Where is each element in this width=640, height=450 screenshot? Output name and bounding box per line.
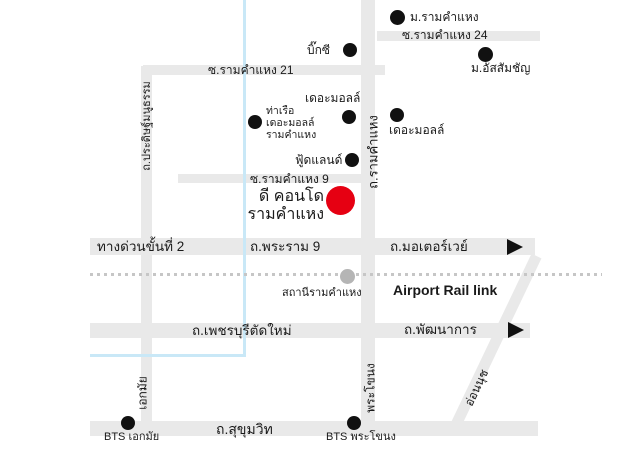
pier-label-line1: ท่าเรือ [266,105,316,117]
bts-phra-khanong-label: BTS พระโขนง [326,431,396,443]
d-condo-label-line1: ดี คอนโด [228,188,324,206]
the-mall-pier-label: ท่าเรือ เดอะมอลล์ รามคำแหง [266,105,316,141]
assumption-university-label: ม.อัสสัมชัญ [471,62,530,75]
d-condo-label: ดี คอนโด รามคำแหง [228,188,324,224]
ramkhamhaeng-station-dot [340,269,355,284]
bts-ekkamai-label: BTS เอกมัย [104,431,159,443]
ramkhamhaeng-station-label: สถานีรามคำแหง [282,286,362,301]
ekkamai-road-label: เอกมัย [134,376,153,410]
the-mall-east-dot [390,108,404,122]
d-condo-marker [326,186,355,215]
pier-label-line2: เดอะมอลล์ [266,117,316,129]
phatthanakan-road-label: ถ.พัฒนาการ [404,322,477,338]
big-c-label: บิ๊กซี [307,44,330,57]
bts-phra-khanong-dot [347,416,361,430]
the-mall-west-label: เดอะมอลล์ [305,92,360,105]
soi-ramkhamhaeng-21-label: ซ.รามคำแหง 21 [208,64,294,77]
the-mall-east-label: เดอะมอลล์ [389,124,444,137]
on-nut-road-label: อ่อนนุช [460,366,494,409]
bts-ekkamai-dot [121,416,135,430]
location-map: สถานีรามคำแหง Airport Rail link ซ.รามคำแ… [0,0,640,450]
motorway-road-label: ถ.มอเตอร์เวย์ [390,239,468,255]
ramkhamhaeng-university-dot [390,10,405,25]
canal-horizontal [90,354,246,357]
phra-khanong-road-label: พระโขนง [362,363,381,413]
pradit-manutham-road-label: ถ.ประดิษฐ์มนูธรรม [137,81,155,171]
ramkhamhaeng-university-label: ม.รามคำแหง [410,11,479,24]
foodland-dot [345,153,359,167]
rama9-road-label: ถ.พระราม 9 [250,239,320,255]
the-mall-west-dot [342,110,356,124]
big-c-dot [343,43,357,57]
d-condo-label-line2: รามคำแหง [228,206,324,224]
new-phetchaburi-road-label: ถ.เพชรบุรีตัดใหม่ [192,323,292,339]
foodland-label: ฟู้ดแลนด์ [295,154,342,167]
assumption-university-dot [478,47,493,62]
soi-ramkhamhaeng-24-label: ซ.รามคำแหง 24 [402,29,488,42]
the-mall-pier-dot [248,115,262,129]
motorway-direction-arrow-icon [507,239,523,255]
expressway-stage2-label: ทางด่วนขั้นที่ 2 [97,239,184,255]
soi-ramkhamhaeng-9-label: ซ.รามคำแหง 9 [250,173,329,186]
sukhumvit-road-label: ถ.สุขุมวิท [216,421,273,437]
canal-vertical [243,0,246,356]
airport-rail-link-label: Airport Rail link [393,283,497,298]
phatthanakan-direction-arrow-icon [508,322,524,338]
ramkhamhaeng-road-label: ถ.รามคำแหง [363,115,384,189]
pier-label-line3: รามคำแหง [266,129,316,141]
